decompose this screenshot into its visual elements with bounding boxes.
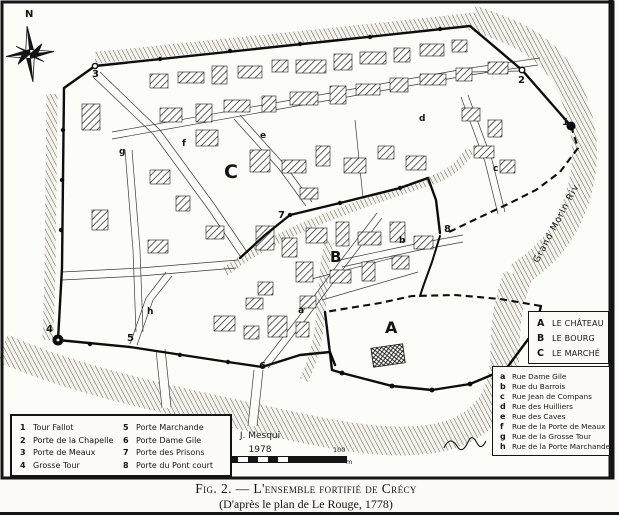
map-label-street-b: b [399, 237, 405, 246]
legend-gate-label: Porte de Meaux [33, 448, 95, 457]
legend-street-item: b Rue du Barrois [500, 382, 607, 391]
legend-street-letter: h [500, 442, 512, 451]
legend-gate-label: Porte du Pont court [136, 461, 213, 470]
legend-street-label: Rue de la Porte Marchande [512, 442, 610, 451]
map-credit: J. Mesqui 1978 [228, 430, 292, 457]
map-label-street-g: g [119, 148, 125, 157]
map-label-gate-4: 4 [46, 325, 53, 335]
map-label-street-d: d [419, 115, 425, 124]
legend-gate-item: 4 Grosse Tour [20, 459, 123, 472]
legend-area-letter: C [537, 348, 552, 359]
legend-street-label: Rue du Barrois [512, 382, 565, 391]
legend-street-label: Rue de la Grosse Tour [512, 432, 591, 441]
credit-year: 1978 [228, 444, 292, 458]
map-label-street-e: e [260, 132, 266, 141]
legend-gate-number: 3 [20, 448, 33, 457]
map-label-gate-2: 2 [518, 76, 525, 86]
legend-gate-item: 5 Porte Marchande [123, 421, 226, 434]
legend-area-label: LE BOURG [552, 334, 595, 343]
legend-gate-number: 2 [20, 436, 33, 445]
legend-gates-list: 1 Tour Fallot 2 Porte de la Chapelle 3 P… [20, 421, 226, 472]
legend-gate-number: 5 [123, 423, 136, 432]
castle-keep [371, 344, 405, 367]
legend-gate-item: 2 Porte de la Chapelle [20, 434, 123, 447]
legend-street-item: h Rue de la Porte Marchande [500, 442, 607, 451]
map-label-street-a: a [298, 307, 304, 316]
map-label-gate-6: 6 [259, 362, 266, 372]
legend-street-item: c Rue Jean de Compans [500, 392, 607, 401]
page-bottom-rule [0, 512, 619, 515]
legend-streets-box: a Rue Dame Gile b Rue du Barrois c Rue J… [492, 366, 610, 456]
legend-street-item: a Rue Dame Gile [500, 372, 607, 381]
legend-street-label: Rue Jean de Compans [512, 392, 592, 401]
legend-street-letter: a [500, 372, 512, 381]
compass-north-label: N [25, 10, 33, 20]
figure-page: N Grand Morin Riv. 1 2 3 4 5 6 7 8 A B C… [0, 0, 619, 517]
legend-gate-label: Porte Dame Gile [136, 436, 201, 445]
legend-street-letter: g [500, 432, 512, 441]
legend-areas-list: A LE CHÂTEAU B LE BOURG C LE MARCHÉ [537, 318, 606, 359]
map-label-street-h: h [147, 308, 153, 317]
legend-gate-number: 6 [123, 436, 136, 445]
scale-end-label: 100 [333, 447, 345, 454]
map-label-area-a: A [385, 320, 398, 336]
map-label-gate-8: 8 [444, 225, 451, 235]
legend-area-item: A LE CHÂTEAU [537, 318, 606, 329]
legend-street-item: g Rue de la Grosse Tour [500, 432, 607, 441]
legend-gate-label: Porte des Prisons [136, 448, 205, 457]
legend-area-letter: A [537, 318, 552, 329]
map-label-street-f: f [182, 140, 186, 149]
legend-street-label: Rue de la Porte de Meaux [512, 422, 605, 431]
legend-gate-item: 8 Porte du Pont court [123, 459, 226, 472]
legend-street-letter: d [500, 402, 512, 411]
legend-gate-number: 1 [20, 423, 33, 432]
legend-street-letter: f [500, 422, 512, 431]
legend-street-label: Rue Dame Gile [512, 372, 566, 381]
legend-gate-label: Porte de la Chapelle [33, 436, 113, 445]
legend-street-label: Rue des Caves [512, 412, 566, 421]
legend-area-label: LE CHÂTEAU [552, 319, 604, 328]
legend-street-item: e Rue des Caves [500, 412, 607, 421]
legend-gate-number: 7 [123, 448, 136, 457]
legend-gate-number: 8 [123, 461, 136, 470]
legend-gate-item: 6 Porte Dame Gile [123, 434, 226, 447]
map-label-area-c: C [224, 163, 238, 182]
legend-gate-label: Tour Fallot [33, 423, 74, 432]
legend-street-letter: c [500, 392, 512, 401]
map-label-gate-3: 3 [92, 70, 99, 80]
legend-street-letter: e [500, 412, 512, 421]
map-label-gate-1: 1 [562, 118, 569, 128]
legend-streets-list: a Rue Dame Gile b Rue du Barrois c Rue J… [500, 372, 607, 451]
legend-gate-item: 1 Tour Fallot [20, 421, 123, 434]
map-label-area-b: B [330, 250, 342, 265]
map-label-street-c: c [493, 165, 498, 174]
legend-gates-box: 1 Tour Fallot 2 Porte de la Chapelle 3 P… [10, 414, 232, 477]
legend-gate-item: 7 Porte des Prisons [123, 447, 226, 460]
legend-street-item: d Rue des Huilliers [500, 402, 607, 411]
figure-caption-title: Fig. 2. — L'ensemble fortifié de Crécy [0, 481, 612, 497]
legend-area-label: LE MARCHÉ [552, 349, 600, 358]
legend-street-item: f Rue de la Porte de Meaux [500, 422, 607, 431]
legend-area-letter: B [537, 333, 552, 344]
credit-name: J. Mesqui [228, 430, 292, 444]
legend-gate-item: 3 Porte de Meaux [20, 447, 123, 460]
legend-area-item: C LE MARCHÉ [537, 348, 606, 359]
map-label-gate-7: 7 [278, 211, 285, 221]
legend-areas-box: A LE CHÂTEAU B LE BOURG C LE MARCHÉ [528, 311, 609, 364]
legend-gate-number: 4 [20, 461, 33, 470]
legend-gate-label: Grosse Tour [33, 461, 80, 470]
map-label-gate-5: 5 [127, 334, 134, 344]
legend-area-item: B LE BOURG [537, 333, 606, 344]
legend-street-letter: b [500, 382, 512, 391]
scale-bar [227, 456, 347, 463]
legend-street-label: Rue des Huilliers [512, 402, 573, 411]
legend-gate-label: Porte Marchande [136, 423, 204, 432]
figure-caption-source: (D'après le plan de Le Rouge, 1778) [0, 497, 612, 512]
scale-unit-label: m [346, 459, 352, 466]
